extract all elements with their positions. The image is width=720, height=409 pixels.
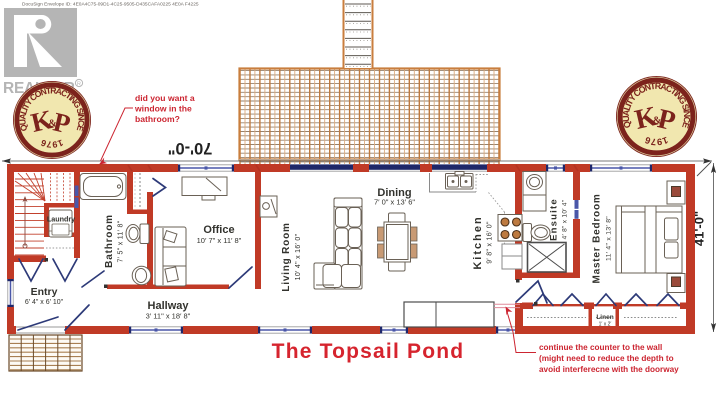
svg-text:Master Bedroom: Master Bedroom [592, 193, 603, 283]
svg-text:Entry: Entry [31, 286, 58, 298]
svg-text:Living Room: Living Room [281, 222, 292, 291]
svg-text:bathroom?: bathroom? [135, 114, 180, 124]
svg-text:Office: Office [203, 224, 234, 236]
svg-text:continue the counter to the wa: continue the counter to the wall [539, 343, 662, 352]
svg-text:The Topsail Pond: The Topsail Pond [272, 340, 465, 363]
svg-text:(might need to reduce the dept: (might need to reduce the depth to [539, 354, 674, 363]
svg-text:avoid interferecne with the do: avoid interferecne with the doorway [539, 365, 679, 374]
svg-text:11′ 4" x 13′ 8": 11′ 4" x 13′ 8" [606, 216, 613, 261]
svg-text:10′ 7" x 11′ 8": 10′ 7" x 11′ 8" [197, 236, 242, 245]
svg-text:Linen: Linen [596, 314, 613, 321]
svg-text:&: & [48, 119, 56, 130]
svg-text:6′ 4" x 6′ 10": 6′ 4" x 6′ 10" [25, 299, 64, 306]
svg-text:7′ 5" x 11′ 8": 7′ 5" x 11′ 8" [118, 220, 125, 262]
svg-text:Kitchen: Kitchen [472, 215, 484, 269]
svg-text:did you want a: did you want a [135, 93, 195, 103]
svg-text:window in the: window in the [134, 104, 192, 114]
svg-text:70'-0": 70'-0" [168, 139, 213, 157]
svg-text:Hallway: Hallway [148, 300, 190, 312]
svg-text:Ensuite: Ensuite [549, 198, 560, 241]
svg-text:4′ 8" x 10′ 4": 4′ 8" x 10′ 4" [562, 199, 569, 239]
svg-text:Bathroom: Bathroom [104, 214, 115, 268]
svg-text:9′ 8" x 16′ 0": 9′ 8" x 16′ 0" [487, 221, 494, 264]
svg-text:&: & [653, 115, 662, 126]
svg-text:DocuSign Envelope ID: 4E0A4C75: DocuSign Envelope ID: 4E0A4C75-09D1-4C25… [22, 2, 199, 8]
svg-text:3′ 11" x 18′ 8": 3′ 11" x 18′ 8" [146, 312, 191, 321]
svg-text:Laundry: Laundry [47, 215, 75, 224]
svg-text:10′ 4" x 16′ 0": 10′ 4" x 16′ 0" [295, 233, 302, 280]
svg-text:7′ 0" x 13′ 6": 7′ 0" x 13′ 6" [374, 198, 415, 207]
svg-text:1′ x 2′: 1′ x 2′ [599, 322, 612, 328]
svg-text:R: R [77, 81, 81, 87]
